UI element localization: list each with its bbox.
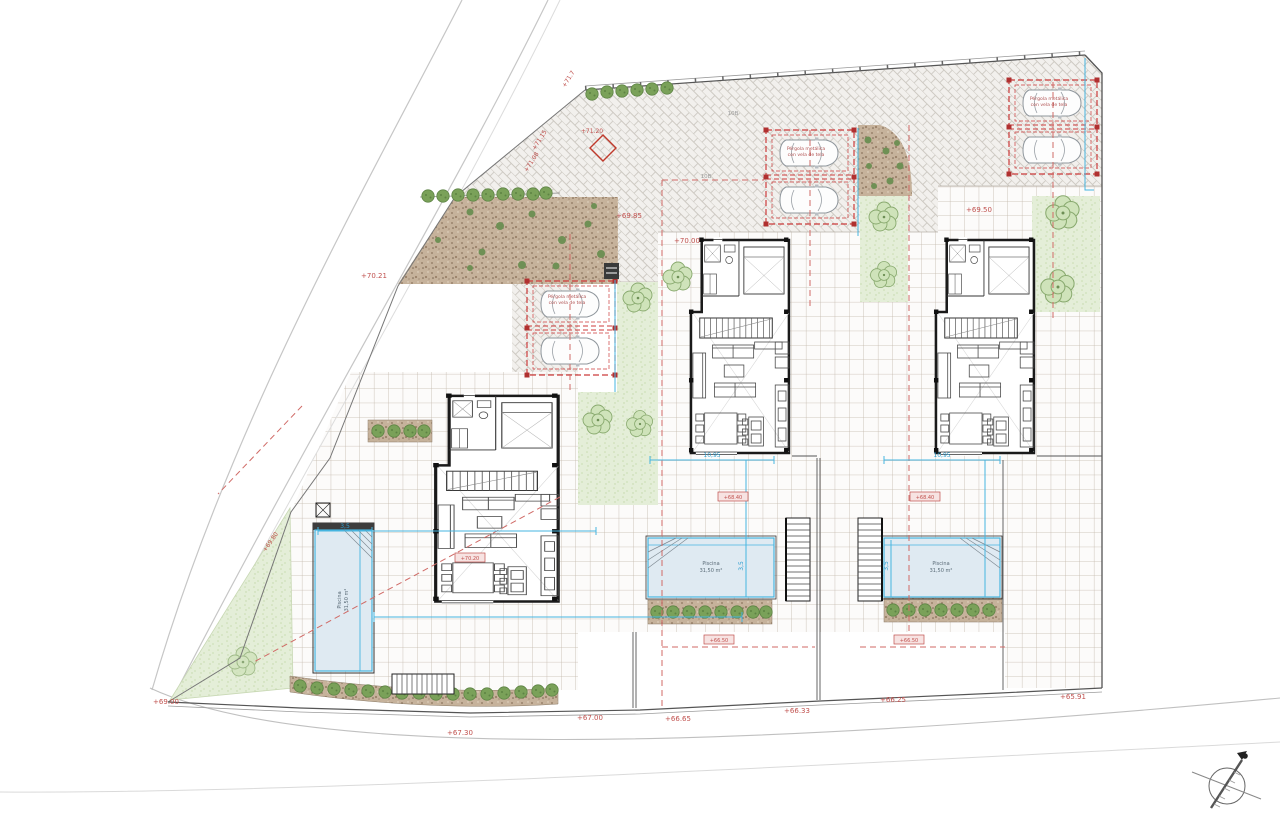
svg-text:+66.50: +66.50 <box>900 638 919 644</box>
elevation-label: +67.00 <box>577 714 603 722</box>
pool-stairs <box>786 518 810 601</box>
pergola-label: Pérgola metálica <box>787 145 826 152</box>
elevation-label: +70.00 <box>674 237 700 245</box>
site-plan-page: +71.7 +71.15 +71.20 +71.08 +70.21 +69.85… <box>0 0 1280 820</box>
car-icon <box>780 185 838 216</box>
parcel-label: 10B <box>701 174 712 180</box>
pergola-label: Pérgola metálica <box>1030 95 1069 102</box>
level-box-label: +66.50 <box>704 635 734 644</box>
elevation-label: +67.30 <box>447 729 473 737</box>
dimension-label: 3,5 <box>340 523 350 530</box>
dimension-label: 10,95 <box>933 452 950 459</box>
pergola-label: con vela de tela <box>1031 102 1068 108</box>
elevation-label: +65.91 <box>1060 693 1086 701</box>
car-icon <box>1023 135 1081 166</box>
pergola-label: con vela de tela <box>788 152 825 158</box>
elevation-label: +66.25 <box>880 696 906 704</box>
villa-2 <box>689 237 789 456</box>
pool-label: Piscina <box>932 561 949 567</box>
level-box-label: +70.20 <box>455 553 485 562</box>
svg-text:+68.40: +68.40 <box>916 495 935 501</box>
elevation-label: +70.21 <box>361 272 387 280</box>
site-plan-drawing: +71.7 +71.15 +71.20 +71.08 +70.21 +69.85… <box>0 0 1280 820</box>
dimension-label: 10,95 <box>703 452 720 459</box>
pergola-label: Pérgola metálica <box>548 293 587 300</box>
elevation-label: +66.33 <box>784 707 810 715</box>
level-box-label: +68.40 <box>910 492 940 501</box>
pool-label: 31,50 m² <box>344 589 350 612</box>
north-compass-icon <box>1192 751 1261 808</box>
car-icon <box>541 336 599 367</box>
elevation-label: +71.20 <box>581 128 603 135</box>
pergola-label: con vela de tela <box>549 300 586 306</box>
pool-label: 31,50 m² <box>930 568 953 574</box>
dimension-label: 3,5 <box>738 561 745 571</box>
svg-text:+68.40: +68.40 <box>724 495 743 501</box>
elevation-label: +69.85 <box>616 212 642 220</box>
svg-text:+70.20: +70.20 <box>461 556 480 562</box>
villa-3 <box>934 237 1034 456</box>
garden-stairs <box>392 674 454 694</box>
level-box-label: +66.50 <box>894 635 924 644</box>
utility-box <box>604 263 619 279</box>
pool-label: Piscina <box>702 561 719 567</box>
svg-text:+66.50: +66.50 <box>710 638 729 644</box>
elevation-label: +66.65 <box>665 715 691 723</box>
villa-1 <box>433 393 558 604</box>
elevation-label: +71.7 <box>561 69 577 88</box>
dimension-label: 3,5 <box>883 561 890 571</box>
elevation-label: +69.00 <box>153 698 179 706</box>
pool-label: Piscina <box>337 591 343 608</box>
elevation-label: +69.50 <box>966 206 992 214</box>
level-box-label: +68.40 <box>718 492 748 501</box>
pool-label: 31,50 m² <box>700 568 723 574</box>
pool-stairs <box>858 518 882 601</box>
parcel-label: 10B <box>728 111 739 117</box>
